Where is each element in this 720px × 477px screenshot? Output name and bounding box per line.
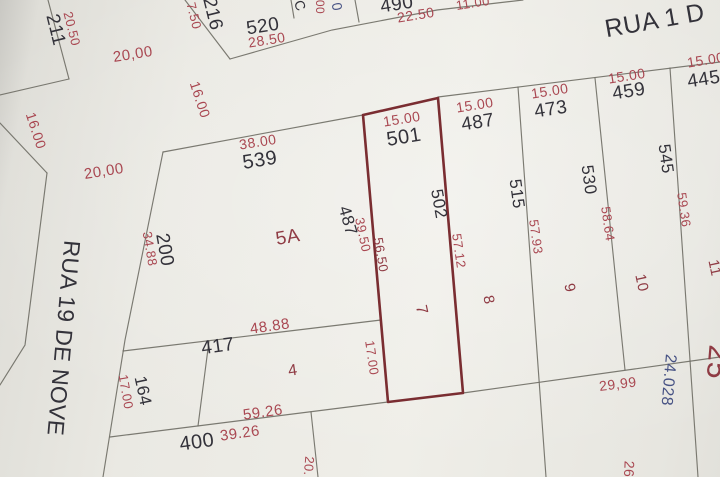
lot-label-11: 11 — [704, 258, 720, 278]
divider-partial-lot-490 — [355, 0, 359, 22]
lot-label-515: 515 — [506, 178, 529, 210]
street-label-rua-1: RUA 1 D — [603, 0, 707, 43]
lot-label-473: 473 — [533, 97, 569, 123]
lot-label-502: 502 — [427, 187, 451, 220]
dim-label-39-50: 39.50 — [352, 216, 374, 253]
dim-label-39-26: 39.26 — [219, 422, 261, 444]
dim-label-26-partial: 26 — [621, 460, 638, 477]
divider-strip-8-9 — [518, 87, 546, 477]
lot-label-530: 530 — [578, 164, 601, 196]
rua1-block-north-boundary — [438, 62, 720, 97]
lot-label-8: 8 — [479, 294, 497, 306]
block-539-west-boundary — [103, 152, 163, 477]
partial-dim-00: 00 — [313, 0, 327, 14]
lot-label-487: 487 — [460, 110, 496, 136]
plat-map-photo: 21120.5016.0020,0020,0016.007.5021652028… — [0, 0, 720, 477]
partial-label-0: 0 — [329, 1, 346, 12]
dim-label-29-99: 29,99 — [598, 373, 637, 393]
lot-label-417: 417 — [200, 334, 236, 359]
dim-label-56-50: 56.50 — [371, 236, 392, 273]
dim-label-24-028: 24.028 — [658, 353, 679, 406]
dim-label-20-00-mid: 20,00 — [83, 160, 125, 183]
lot-label-545: 545 — [655, 143, 678, 175]
divider-strip-10-11 — [670, 68, 698, 477]
dim-label-16-00-right: 16.00 — [187, 79, 214, 120]
cadastral-map-svg: 21120.5016.0020,0020,0016.007.5021652028… — [0, 0, 720, 477]
dim-label-20-bottom: 20. — [301, 456, 318, 477]
street-label-rua-19: RUA 19 DE NOVE — [42, 239, 85, 437]
dim-label-59-26: 59.26 — [242, 401, 284, 423]
lot-211-south-boundary — [0, 79, 69, 95]
dim-label-11-00: 11.00 — [455, 0, 491, 13]
lot-label-25-partial: 25 — [700, 344, 720, 381]
lot-label-10: 10 — [631, 272, 651, 293]
lot-label-459: 459 — [611, 79, 647, 105]
lot-label-5a: 5A — [274, 225, 302, 250]
rua19-west-edge — [0, 173, 47, 385]
dim-label-59-36: 59.36 — [674, 191, 694, 228]
lot-label-4: 4 — [287, 362, 299, 380]
lot-label-7: 7 — [412, 304, 431, 317]
dim-label-16-00-left: 16.00 — [23, 110, 50, 151]
dim-label-17-00-strip: 17.00 — [362, 339, 382, 376]
dim-label-58-64: 58.64 — [598, 205, 618, 242]
lot-label-445: 445 — [686, 67, 720, 93]
lot-label-539: 539 — [241, 147, 279, 174]
dim-label-20-00-top: 20,00 — [112, 43, 154, 66]
lot-label-501: 501 — [385, 124, 423, 151]
diagonal-rear-boundary — [463, 357, 720, 393]
lot-label-9: 9 — [560, 282, 578, 294]
lot-label-400: 400 — [178, 429, 216, 456]
partial-label-c: C — [291, 0, 310, 13]
dim-label-48-88: 48.88 — [249, 315, 291, 337]
